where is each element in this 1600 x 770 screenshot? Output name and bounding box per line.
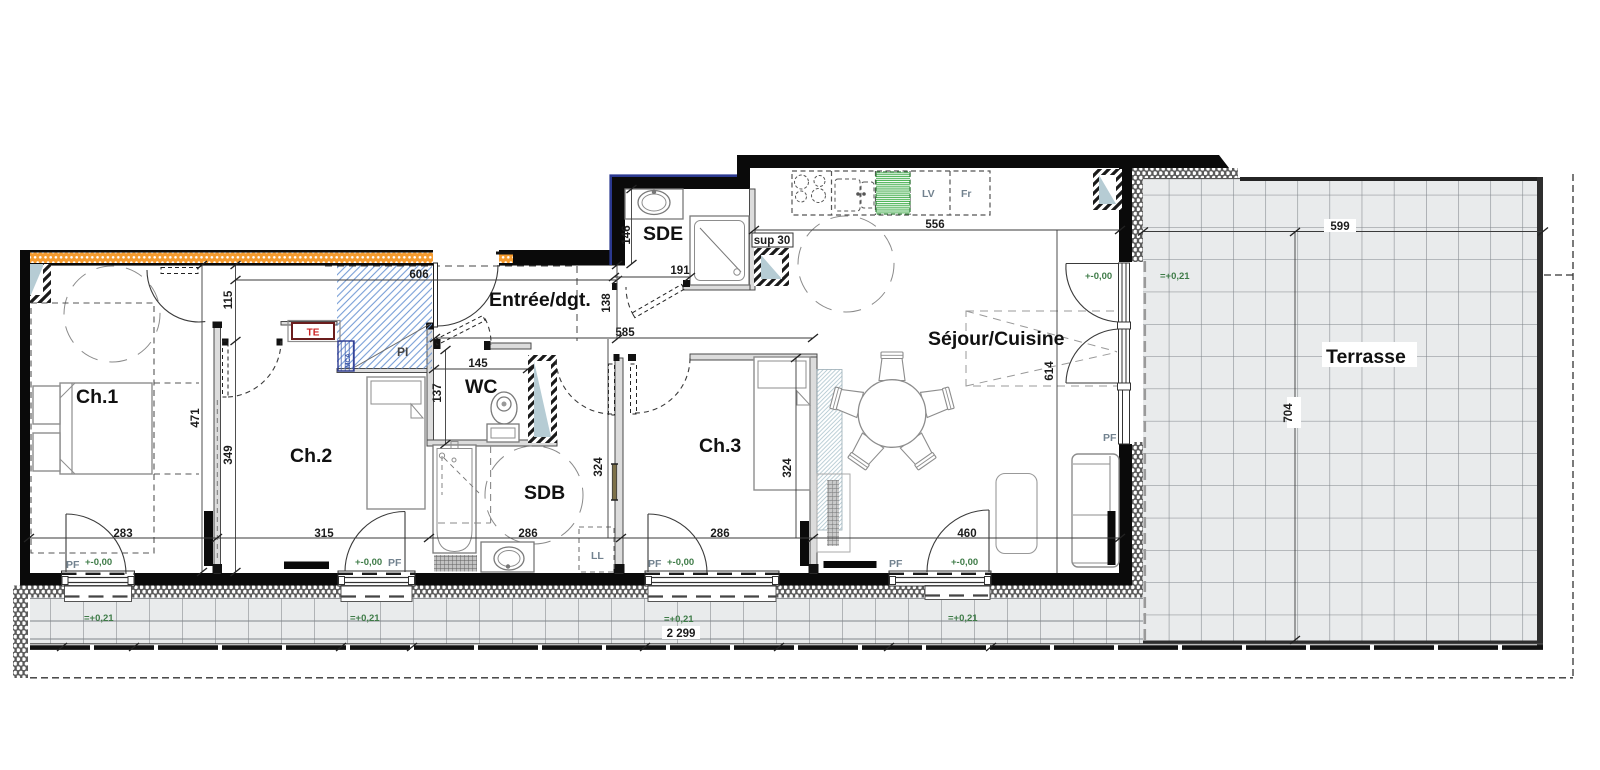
svg-text:471: 471: [190, 408, 202, 428]
svg-text:LL: LL: [591, 550, 604, 562]
svg-text:PF: PF: [388, 557, 402, 569]
svg-text:145: 145: [468, 358, 488, 370]
svg-text:PF: PF: [1103, 432, 1117, 444]
svg-text:=+0,21: =+0,21: [84, 613, 114, 624]
svg-text:+-0,00: +-0,00: [355, 557, 382, 568]
svg-text:LV: LV: [922, 188, 935, 200]
svg-text:Ch.3: Ch.3: [699, 435, 741, 457]
svg-text:Entrée/dgt.: Entrée/dgt.: [489, 289, 591, 311]
svg-text:PF: PF: [66, 559, 80, 571]
svg-text:138: 138: [601, 293, 613, 313]
svg-text:115: 115: [223, 290, 235, 309]
svg-text:606: 606: [409, 269, 428, 281]
svg-text:PI: PI: [397, 345, 408, 359]
svg-text:2 299: 2 299: [667, 628, 696, 640]
svg-text:SDE: SDE: [643, 223, 683, 245]
svg-text:599: 599: [1330, 221, 1349, 233]
svg-text:146: 146: [621, 225, 633, 244]
svg-text:Séjour/Cuisine: Séjour/Cuisine: [928, 328, 1065, 350]
svg-text:+-0,00: +-0,00: [1085, 271, 1112, 282]
svg-text:286: 286: [710, 528, 729, 540]
svg-text:PF: PF: [889, 558, 903, 570]
svg-text:349: 349: [223, 445, 235, 464]
svg-text:PF: PF: [648, 558, 662, 570]
svg-text:556: 556: [925, 219, 944, 231]
svg-text:Ch.2: Ch.2: [290, 445, 332, 467]
svg-text:324: 324: [782, 458, 794, 478]
svg-text:MCA: MCA: [345, 353, 352, 368]
svg-text:+-0,00: +-0,00: [667, 557, 694, 568]
svg-text:137: 137: [432, 383, 444, 402]
svg-text:Ch.1: Ch.1: [76, 386, 118, 408]
svg-text:315: 315: [314, 528, 334, 540]
svg-text:WC: WC: [465, 376, 498, 398]
svg-text:286: 286: [518, 528, 537, 540]
svg-text:Terrasse: Terrasse: [1326, 346, 1406, 368]
svg-text:704: 704: [1283, 403, 1295, 423]
svg-text:+-0,00: +-0,00: [85, 557, 112, 568]
svg-text:283: 283: [113, 528, 132, 540]
svg-text:324: 324: [593, 457, 605, 477]
svg-text:=+0,21: =+0,21: [948, 613, 978, 624]
svg-text:614: 614: [1044, 361, 1056, 381]
svg-text:+-0,00: +-0,00: [951, 557, 978, 568]
svg-text:=+0,21: =+0,21: [664, 614, 694, 625]
svg-text:TE: TE: [307, 328, 320, 339]
svg-text:Fr: Fr: [961, 188, 972, 200]
svg-text:191: 191: [670, 265, 690, 277]
svg-text:=+0,21: =+0,21: [1160, 271, 1190, 282]
svg-text:SDB: SDB: [524, 482, 565, 504]
svg-text:sup 30: sup 30: [754, 235, 790, 247]
svg-text:=+0,21: =+0,21: [350, 613, 380, 624]
svg-text:460: 460: [957, 528, 976, 540]
